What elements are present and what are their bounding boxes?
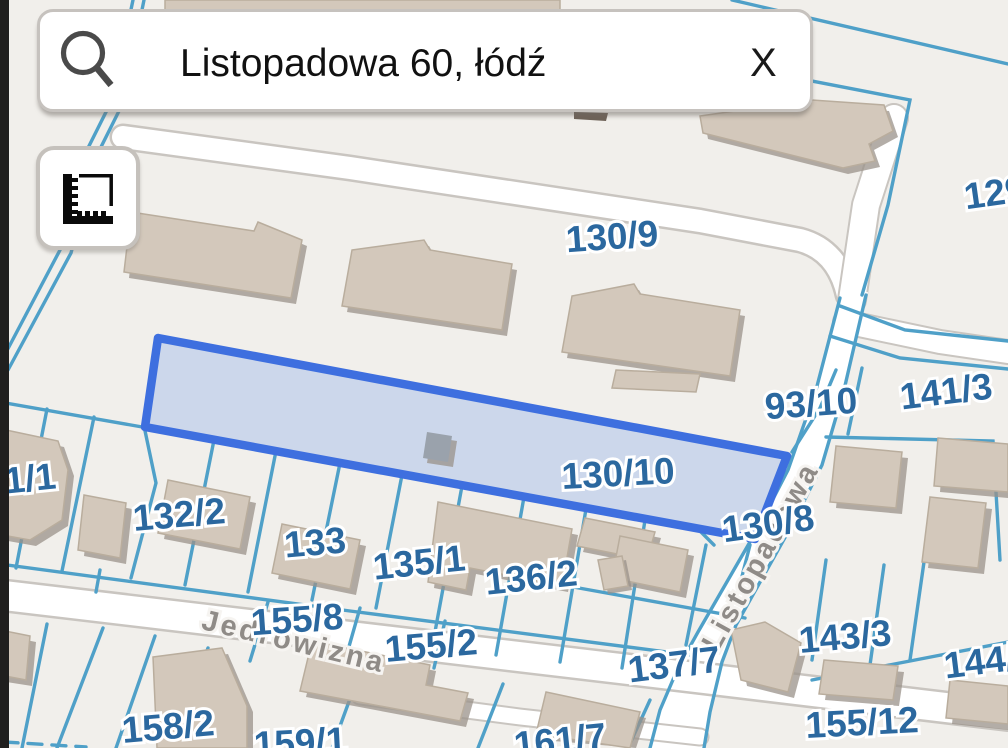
svg-text:143/3: 143/3: [797, 612, 893, 661]
svg-text:130/9: 130/9: [564, 213, 659, 260]
svg-text:1/1: 1/1: [2, 455, 57, 501]
svg-text:155/2: 155/2: [383, 621, 479, 670]
svg-text:155/8: 155/8: [249, 596, 344, 643]
svg-text:93/10: 93/10: [763, 380, 858, 427]
svg-text:132/2: 132/2: [131, 490, 227, 539]
svg-text:133: 133: [283, 519, 348, 565]
svg-text:158/2: 158/2: [120, 702, 216, 748]
svg-text:159/1: 159/1: [253, 720, 348, 748]
svg-text:155/12: 155/12: [804, 699, 919, 746]
svg-text:130/10: 130/10: [560, 450, 675, 497]
